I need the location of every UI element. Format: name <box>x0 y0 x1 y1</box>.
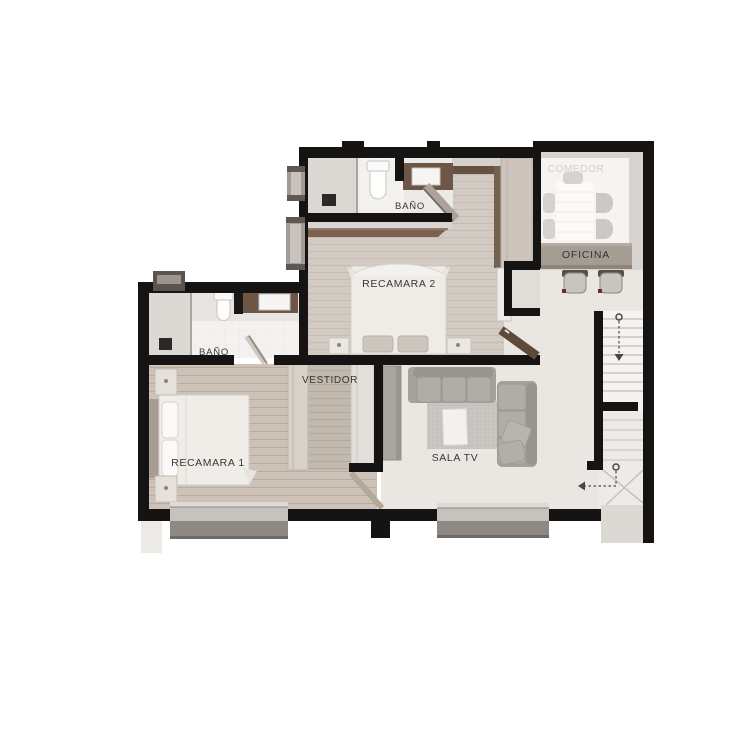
svg-text:SALA TV: SALA TV <box>432 452 479 464</box>
svg-text:RECAMARA 1: RECAMARA 1 <box>171 457 245 469</box>
svg-text:COMEDOR: COMEDOR <box>548 164 604 175</box>
svg-text:BAÑO: BAÑO <box>395 201 425 212</box>
svg-text:VESTIDOR: VESTIDOR <box>302 375 358 386</box>
svg-text:RECAMARA 2: RECAMARA 2 <box>362 278 436 290</box>
svg-text:OFICINA: OFICINA <box>562 249 610 261</box>
